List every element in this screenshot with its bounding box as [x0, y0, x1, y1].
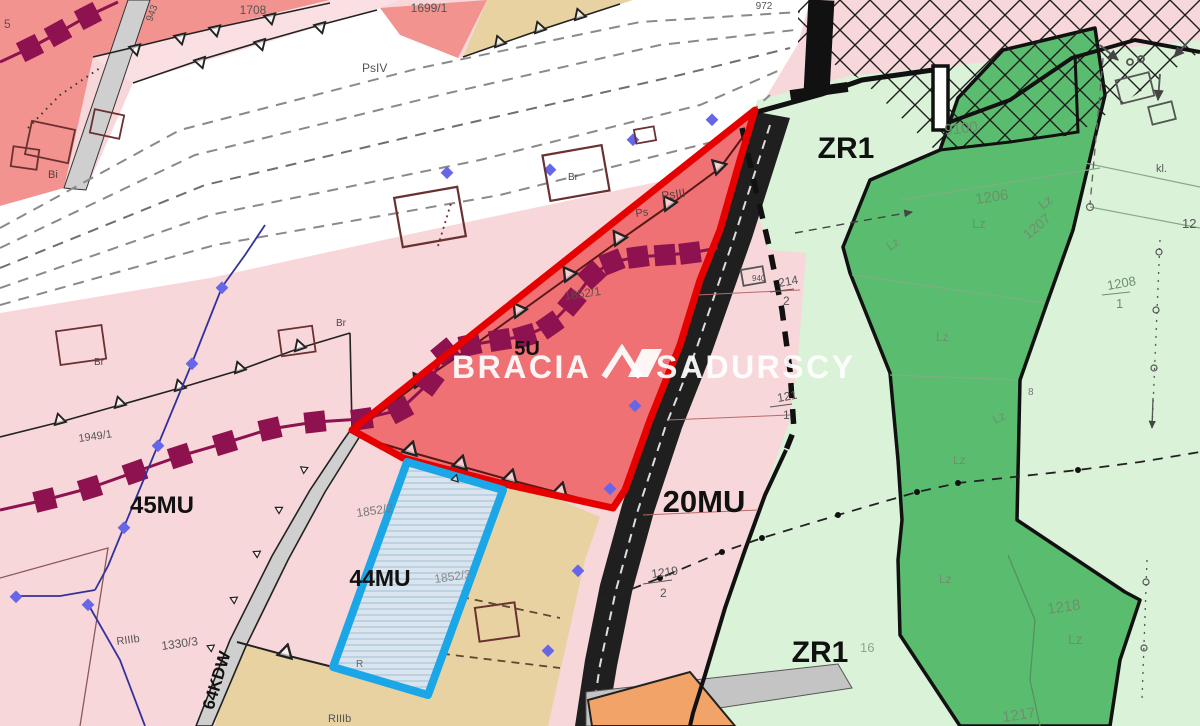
zone-label-44mu: 44MU	[349, 565, 410, 591]
landuse-label-riiib-2: RIIIb	[328, 713, 351, 725]
landuse-label-lz-8: Lz	[1068, 631, 1083, 647]
parcel-label-940: 940	[752, 274, 766, 283]
zone-label-45mu: 45MU	[130, 492, 194, 519]
parcel-label-1699-1: 1699/1	[411, 1, 448, 15]
landuse-label-lz-4: Lz	[936, 330, 949, 344]
watermark-text-sadurscy: SADURSCY	[656, 349, 856, 385]
watermark-text-bracia: BRACIA	[452, 349, 591, 385]
landuse-label-br-2: Br	[336, 318, 347, 329]
map-canvas: ZR1 ZR1 20MU 45MU 44MU 5U 64KDW 1708 169…	[0, 0, 1200, 726]
zone-label-zr1-bottom: ZR1	[792, 636, 849, 669]
parcel-label-972: 972	[756, 1, 773, 12]
zone-label-20mu: 20MU	[663, 484, 746, 519]
parcel-label-1708: 1708	[240, 3, 267, 17]
zone-label-zr1-top: ZR1	[818, 132, 875, 165]
landuse-label-kl: kl.	[1156, 163, 1167, 175]
parcel-label-121-den: 1	[783, 408, 790, 422]
black-bar-symbol	[804, 0, 835, 93]
zoning-map: ZR1 ZR1 20MU 45MU 44MU 5U 64KDW 1708 169…	[0, 0, 1200, 726]
landuse-label-br-3: Br	[568, 172, 579, 183]
landuse-label-lz-7: Lz	[939, 572, 952, 586]
parcel-label-5: 5	[4, 17, 11, 31]
parcel-label-16: 16	[860, 640, 874, 655]
survey-label-8: 8	[1028, 387, 1034, 398]
parcel-label-1208-den: 1	[1116, 296, 1123, 311]
landuse-label-bi: Bi	[48, 169, 58, 181]
landuse-label-br-1: Br	[94, 357, 105, 368]
landuse-label-lz-6: Lz	[953, 453, 966, 467]
parcel-label-9100: 9100	[944, 119, 979, 139]
landuse-label-lz-1: Lz	[972, 216, 986, 231]
landuse-label-r: R	[356, 659, 363, 670]
landuse-label-ps: Ps	[635, 206, 650, 220]
parcel-label-1219-den: 2	[660, 586, 667, 600]
landuse-label-psiv: PsIV	[362, 61, 387, 75]
parcel-label-12-partial: 12	[1182, 216, 1196, 231]
boundary-notch	[933, 66, 948, 130]
parcel-label-214-den: 2	[783, 294, 790, 308]
